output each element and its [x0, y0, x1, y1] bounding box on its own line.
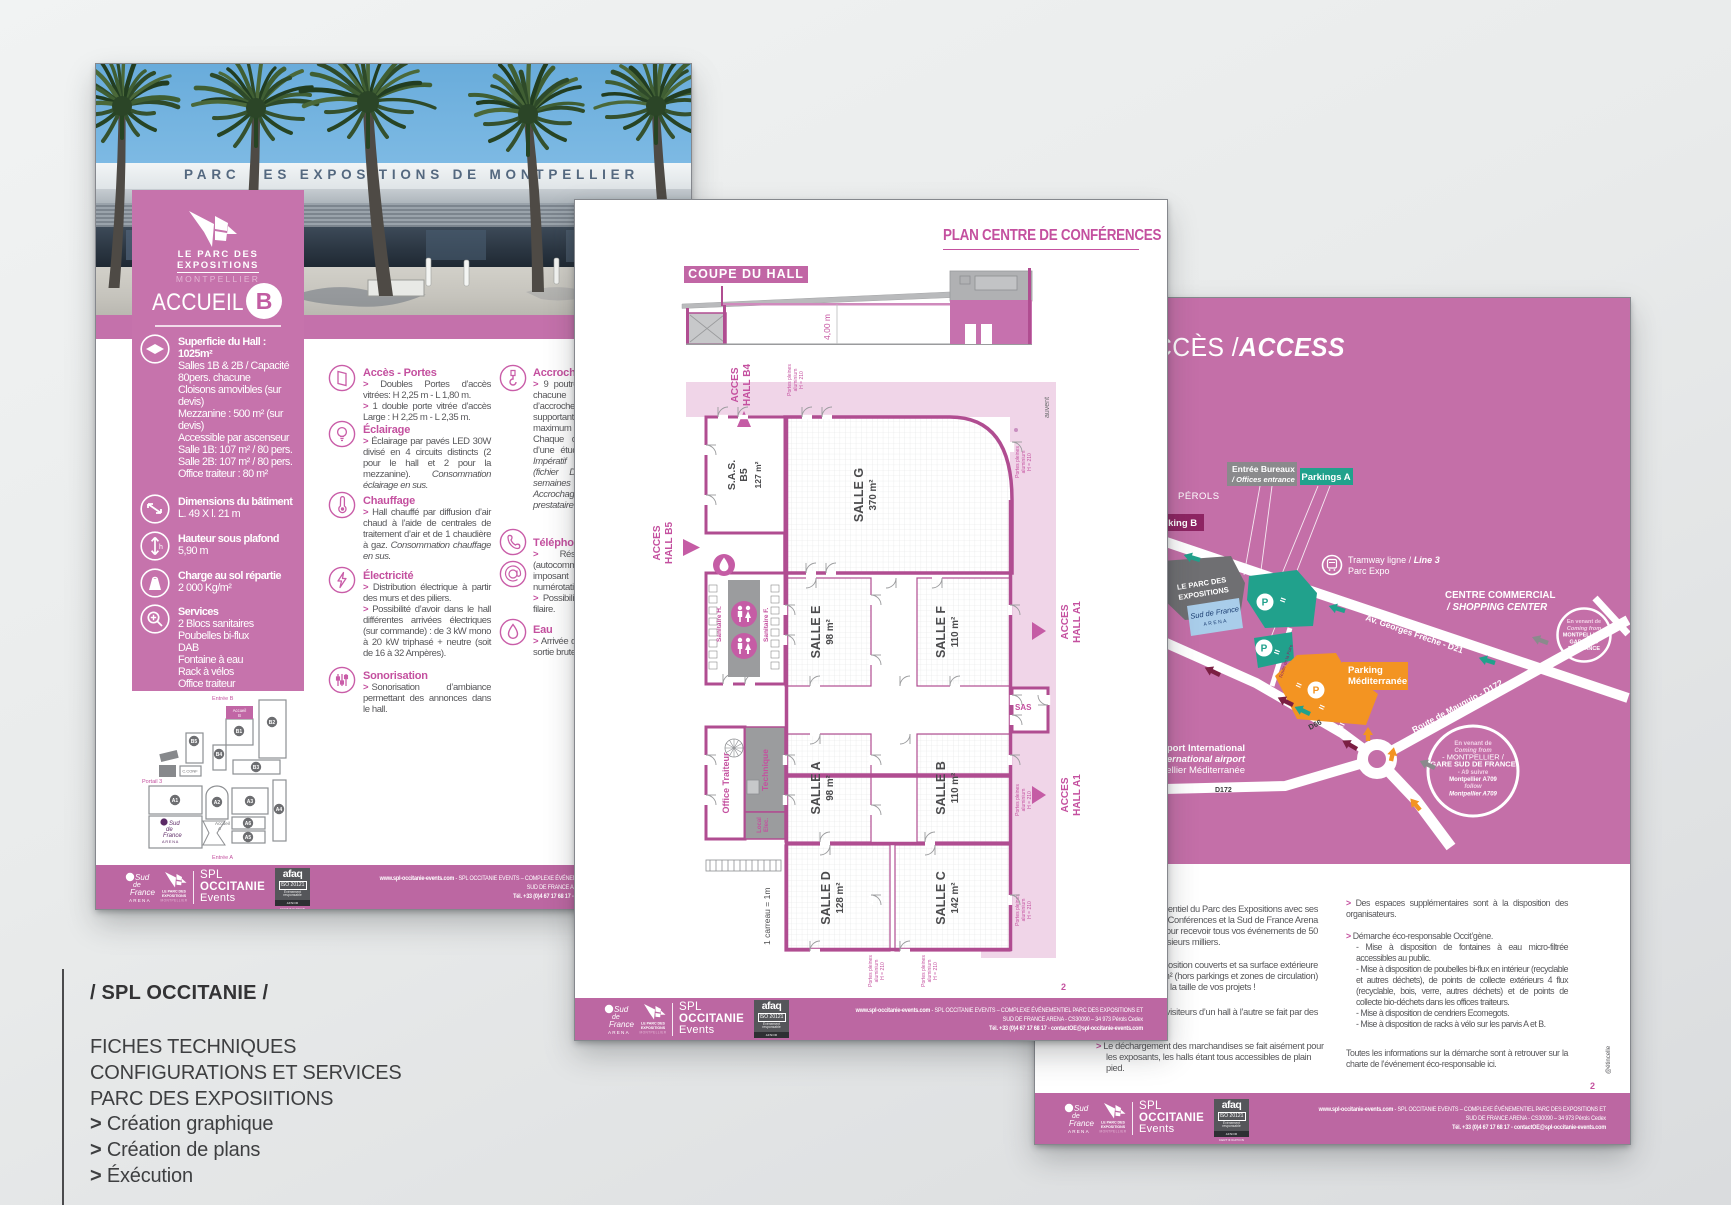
svg-text:ARENA: ARENA — [129, 898, 151, 903]
svg-text:98 m²: 98 m² — [825, 618, 836, 644]
svg-text:Parkings A: Parkings A — [1301, 472, 1350, 483]
svg-text:/ Offices entrance: / Offices entrance — [1231, 475, 1295, 484]
svg-text:C.CONF: C.CONF — [182, 769, 198, 774]
svg-text:France: France — [609, 1020, 634, 1029]
svg-text:- A9 suivre: - A9 suivre — [1458, 770, 1489, 776]
svg-text:SALLE B: SALLE B — [934, 761, 948, 814]
svg-text:Elec.: Elec. — [764, 818, 770, 832]
svg-text:ACCES: ACCES — [730, 367, 741, 402]
svg-text:Montpellier A709: Montpellier A709 — [1449, 791, 1497, 797]
svg-text:110 m²: 110 m² — [950, 616, 961, 647]
svg-text:Parc Expo: Parc Expo — [1348, 566, 1390, 576]
svg-text:110 m²: 110 m² — [950, 772, 961, 803]
svg-text:En venant de: En venant de — [1567, 619, 1601, 625]
svg-text:Sanitaire H.: Sanitaire H. — [716, 606, 723, 642]
svg-text:ARENA: ARENA — [608, 1030, 630, 1035]
svg-text:SAS: SAS — [1015, 703, 1032, 712]
svg-text:Portail 3: Portail 3 — [142, 779, 162, 785]
svg-text:EXPOSITIONS: EXPOSITIONS — [641, 1026, 666, 1030]
svg-text:A3: A3 — [247, 799, 254, 805]
svg-text:SALLE A: SALLE A — [809, 761, 823, 814]
svg-text:Office Traiteur: Office Traiteur — [721, 752, 731, 814]
svg-text:HALL B4: HALL B4 — [742, 364, 753, 406]
svg-text:Sud: Sud — [614, 1005, 629, 1014]
svg-text:LE PARC DES: LE PARC DES — [1101, 1121, 1125, 1125]
svg-text:EXPOSITIONS: EXPOSITIONS — [162, 894, 187, 898]
svg-text:Coming from: Coming from — [1567, 626, 1601, 632]
svg-text:SALLE D: SALLE D — [819, 871, 833, 924]
svg-text:Entrée A: Entrée A — [212, 855, 233, 861]
svg-text:Route de Mauguio - D172: Route de Mauguio - D172 — [1410, 677, 1504, 734]
svg-text:S.A.S.: S.A.S. — [726, 460, 738, 490]
svg-text:MONTPELLIER /: MONTPELLIER / — [1563, 633, 1606, 639]
svg-text:ACCES: ACCES — [1060, 777, 1071, 812]
svg-text:B5: B5 — [191, 739, 198, 745]
svg-text:HALL A1: HALL A1 — [1072, 774, 1083, 816]
svg-text:H = 210: H = 210 — [1027, 791, 1033, 809]
svg-text:D172: D172 — [1215, 787, 1232, 794]
svg-text:France: France — [130, 888, 155, 897]
svg-text:Entrée Bureaux: Entrée Bureaux — [1232, 464, 1295, 474]
svg-text:B4: B4 — [216, 752, 223, 758]
svg-text:127 m²: 127 m² — [753, 461, 763, 488]
svg-text:4,00 m: 4,00 m — [822, 314, 832, 340]
svg-text:Parking: Parking — [1348, 665, 1383, 676]
svg-text:A2: A2 — [214, 800, 221, 806]
svg-text:ARENA: ARENA — [1068, 1129, 1090, 1134]
svg-text:ACCES: ACCES — [1060, 604, 1071, 639]
svg-text:Sud: Sud — [1074, 1104, 1089, 1113]
svg-text:A4: A4 — [276, 807, 283, 813]
svg-text:Méditerranée: Méditerranée — [1348, 676, 1407, 687]
svg-text:Technique: Technique — [760, 749, 770, 791]
svg-text:ARENA: ARENA — [162, 840, 179, 844]
svg-text:MONTPELLIER: MONTPELLIER — [640, 1031, 667, 1035]
svg-text:ACCES: ACCES — [652, 525, 663, 560]
svg-text:SALLE F: SALLE F — [934, 606, 948, 658]
svg-text:MONTPELLIER: MONTPELLIER — [1100, 1130, 1127, 1134]
svg-text:142 m²: 142 m² — [950, 882, 961, 914]
svg-text:B2: B2 — [269, 720, 276, 726]
svg-text:SALLE C: SALLE C — [934, 871, 948, 924]
svg-text:LE PARC DES: LE PARC DES — [641, 1022, 665, 1026]
svg-text:98 m²: 98 m² — [825, 774, 836, 800]
svg-text:SALLE G: SALLE G — [852, 468, 866, 522]
svg-text:B1: B1 — [236, 729, 243, 735]
svg-text:GARE SUD DE FRANCE: GARE SUD DE FRANCE — [1430, 760, 1515, 769]
svg-text:auvent: auvent — [1044, 397, 1051, 418]
svg-text:P: P — [1313, 686, 1320, 697]
svg-text:H = 210: H = 210 — [1027, 901, 1033, 919]
svg-text:CENTRE COMMERCIAL: CENTRE COMMERCIAL — [1445, 590, 1555, 601]
svg-text:H = 210: H = 210 — [933, 962, 939, 980]
svg-text:A5: A5 — [245, 835, 252, 841]
svg-text:Sud: Sud — [135, 873, 150, 882]
svg-text:P: P — [1262, 598, 1269, 609]
svg-text:Sanitaire F.: Sanitaire F. — [763, 607, 770, 642]
svg-text:H = 210: H = 210 — [799, 371, 805, 389]
svg-text:B3: B3 — [253, 765, 260, 771]
svg-text:/ SHOPPING CENTER: / SHOPPING CENTER — [1446, 602, 1548, 613]
svg-text:1 carreau = 1m: 1 carreau = 1m — [762, 888, 772, 945]
svg-text:SALLE E: SALLE E — [809, 606, 823, 659]
svg-text:France: France — [1069, 1119, 1094, 1128]
svg-text:follow: follow — [1464, 784, 1482, 790]
svg-text:Montpellier A709: Montpellier A709 — [1449, 777, 1497, 783]
svg-text:B: B — [238, 713, 241, 718]
svg-text:128 m²: 128 m² — [835, 882, 846, 914]
svg-text:EXPOSITIONS: EXPOSITIONS — [1101, 1125, 1126, 1129]
svg-text:LE PARC DES: LE PARC DES — [162, 890, 186, 894]
svg-text:H = 210: H = 210 — [1027, 453, 1033, 471]
svg-text:P: P — [1261, 644, 1268, 655]
svg-text:h: h — [159, 544, 163, 551]
svg-text:France: France — [163, 833, 182, 839]
svg-text:H = 210: H = 210 — [880, 962, 886, 980]
svg-text:Entrée B: Entrée B — [212, 696, 234, 702]
svg-text:GARE SUD: GARE SUD — [1569, 639, 1598, 645]
svg-text:HALL A1: HALL A1 — [1072, 601, 1083, 643]
svg-text:MONTPELLIER: MONTPELLIER — [161, 899, 188, 903]
svg-text:Local: Local — [757, 817, 763, 833]
svg-text:DE FRANCE: DE FRANCE — [1568, 646, 1600, 652]
svg-text:Tramway ligne / Line 3: Tramway ligne / Line 3 — [1348, 555, 1440, 565]
svg-text:A6: A6 — [245, 821, 252, 827]
svg-text:HALL B5: HALL B5 — [664, 522, 675, 564]
svg-text:370 m²: 370 m² — [868, 479, 879, 511]
svg-text:En venant de: En venant de — [1454, 741, 1492, 747]
svg-text:A1: A1 — [172, 798, 179, 804]
svg-text:B5: B5 — [738, 468, 750, 482]
svg-text:PÉROLS: PÉROLS — [1178, 491, 1220, 502]
